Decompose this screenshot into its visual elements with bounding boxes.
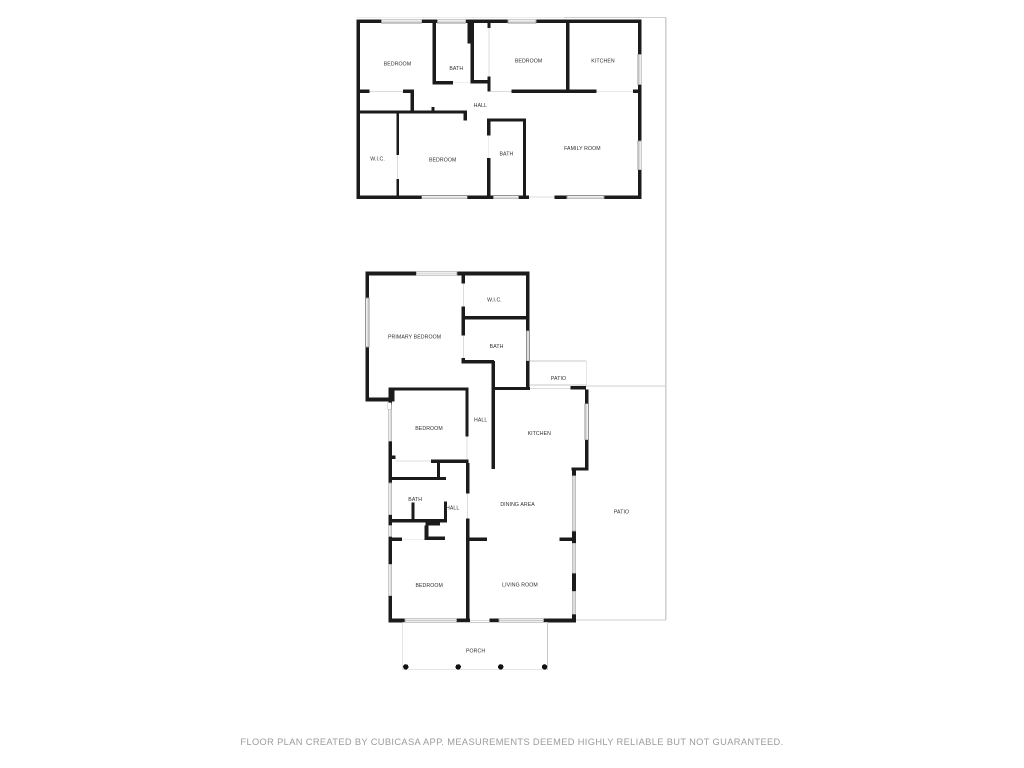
svg-text:BATH: BATH	[449, 66, 463, 72]
svg-text:W.I.C.: W.I.C.	[370, 157, 385, 163]
svg-text:BATH: BATH	[499, 152, 513, 158]
svg-text:PATIO: PATIO	[551, 376, 566, 382]
svg-text:FLOOR PLAN CREATED BY CUBICASA: FLOOR PLAN CREATED BY CUBICASA APP. MEAS…	[240, 737, 783, 747]
svg-text:BEDROOM: BEDROOM	[415, 426, 443, 432]
svg-text:LIVING ROOM: LIVING ROOM	[502, 583, 538, 589]
svg-text:FAMILY ROOM: FAMILY ROOM	[564, 146, 601, 152]
svg-text:HALL: HALL	[474, 103, 487, 109]
svg-text:PORCH: PORCH	[466, 649, 485, 655]
svg-text:BEDROOM: BEDROOM	[415, 583, 443, 589]
svg-text:BEDROOM: BEDROOM	[384, 61, 412, 67]
svg-text:PRIMARY BEDROOM: PRIMARY BEDROOM	[388, 335, 441, 341]
svg-text:KITCHEN: KITCHEN	[528, 431, 552, 437]
svg-text:BATH: BATH	[408, 497, 422, 503]
svg-text:W.I.C.: W.I.C.	[487, 297, 502, 303]
svg-text:BEDROOM: BEDROOM	[429, 158, 457, 164]
svg-text:BATH: BATH	[490, 344, 504, 350]
svg-text:PATIO: PATIO	[614, 510, 629, 516]
svg-text:KITCHEN: KITCHEN	[591, 59, 615, 65]
svg-text:BEDROOM: BEDROOM	[515, 59, 543, 65]
svg-text:HALL: HALL	[446, 506, 459, 512]
svg-text:HALL: HALL	[474, 417, 487, 423]
svg-text:DINING AREA: DINING AREA	[500, 502, 535, 508]
